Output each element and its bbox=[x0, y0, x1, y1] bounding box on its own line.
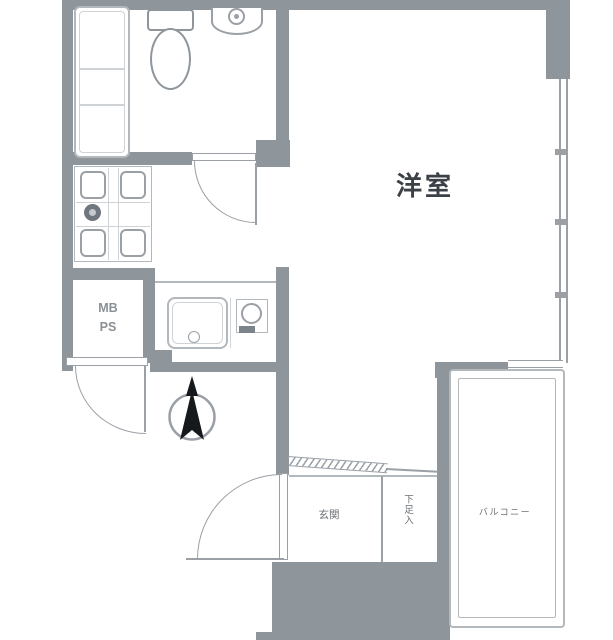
entrance-threshold bbox=[186, 558, 284, 560]
toilet-bowl bbox=[150, 28, 191, 90]
wall-south-strip bbox=[256, 632, 272, 640]
meterbox-door-swing-arc bbox=[75, 366, 146, 434]
stove-grill bbox=[239, 326, 255, 333]
genkan-top-line bbox=[289, 475, 437, 477]
bathtub-line-1 bbox=[80, 68, 124, 70]
floor-plan: 洋室 MB PS 玄関 下足入 バルコニー bbox=[0, 0, 613, 640]
bathtub-inner bbox=[79, 11, 125, 153]
laundry-pan-band-h1 bbox=[76, 202, 150, 203]
main-room-label: 洋室 bbox=[390, 166, 460, 203]
entrance-door-swing-arc bbox=[197, 474, 282, 559]
wall-top-right-corner bbox=[546, 0, 570, 79]
meterbox-door-leaf bbox=[66, 357, 148, 366]
laundry-drain-center bbox=[89, 209, 96, 216]
window-mullion-3 bbox=[555, 292, 567, 298]
shoe-cabinet-label: 下足入 bbox=[400, 494, 414, 526]
kitchen-counter-edge bbox=[155, 281, 276, 283]
counter-divider bbox=[230, 298, 231, 348]
wall-left bbox=[62, 0, 73, 371]
wall-center-upper bbox=[276, 0, 289, 167]
wall-meterbox-right bbox=[143, 268, 155, 363]
meterbox-label-mb: MB bbox=[98, 301, 117, 315]
sink-faucet-icon bbox=[188, 331, 200, 343]
wall-top bbox=[62, 0, 570, 10]
bathtub-line-2 bbox=[80, 104, 124, 106]
wall-south-block bbox=[272, 562, 450, 640]
window-mullion-1 bbox=[555, 149, 567, 155]
genkan-shoebox-divider bbox=[381, 476, 383, 562]
washbasin-drain-icon bbox=[234, 14, 239, 19]
entrance-label: 玄関 bbox=[309, 507, 349, 522]
washroom-door-swing-arc bbox=[194, 161, 256, 223]
laundry-pan-band-v1 bbox=[108, 168, 109, 260]
laundry-pan-pad-br bbox=[120, 229, 146, 257]
wall-meterbox-top bbox=[62, 268, 155, 280]
laundry-pan-pad-tr bbox=[120, 171, 146, 199]
north-arrow-icon bbox=[166, 372, 218, 446]
laundry-pan-band-v2 bbox=[118, 168, 119, 260]
entrance-step-line bbox=[386, 468, 438, 473]
entrance-step-hatch bbox=[287, 456, 387, 473]
laundry-pan-pad-bl bbox=[80, 229, 106, 257]
wall-kitchen-south-stub bbox=[150, 350, 172, 362]
laundry-pan-pad-tl bbox=[80, 171, 106, 199]
stove-burner-icon bbox=[241, 303, 262, 324]
window-mullion-2 bbox=[555, 219, 567, 225]
laundry-pan-band-h2 bbox=[76, 226, 150, 227]
meterbox-label-ps: PS bbox=[100, 320, 117, 334]
balcony-door-sill bbox=[508, 360, 563, 368]
balcony-railing-inner bbox=[458, 378, 556, 618]
washroom-door-leaf bbox=[192, 153, 256, 161]
wall-kitchen-south bbox=[150, 362, 289, 372]
balcony-label: バルコニー bbox=[470, 505, 540, 518]
meterbox-label: MB PS bbox=[90, 299, 126, 337]
